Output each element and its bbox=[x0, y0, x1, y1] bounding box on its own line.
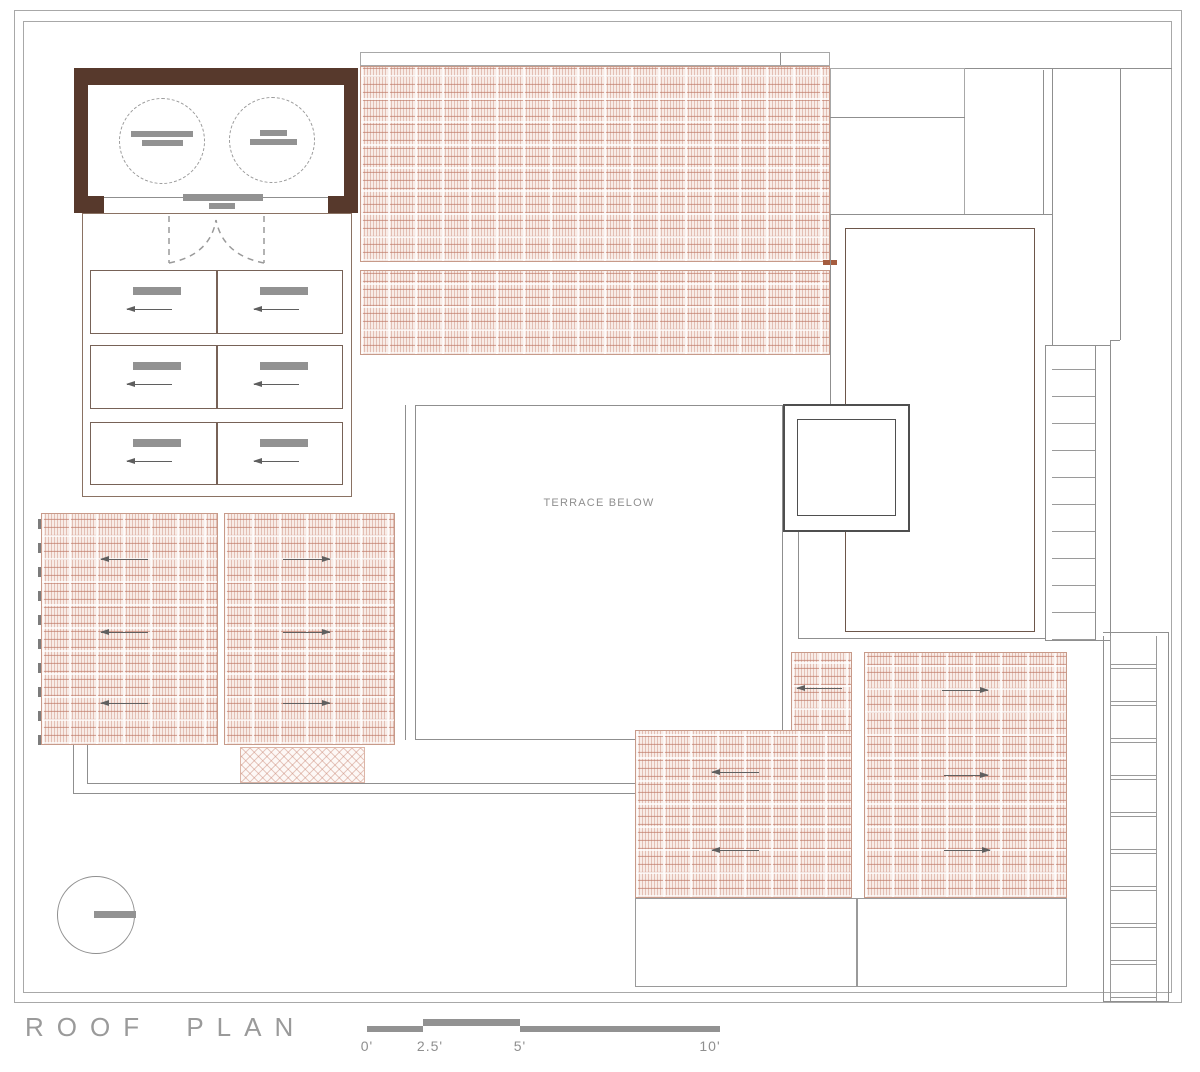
slope-arrow-left bbox=[101, 703, 148, 704]
panel-vent-bar bbox=[260, 287, 308, 295]
panel-vent-bar bbox=[260, 362, 308, 370]
wall-line-v bbox=[1043, 70, 1044, 215]
scale-bar-segment bbox=[423, 1019, 520, 1026]
slope-arrow-left bbox=[127, 384, 172, 385]
stair-lower-treads bbox=[1110, 636, 1157, 1002]
lower-roof-box-right bbox=[857, 898, 1067, 987]
panel-vent-bar bbox=[133, 287, 181, 295]
tile-roof-top-lower bbox=[360, 270, 830, 355]
slope-arrow-left bbox=[254, 309, 299, 310]
stair-rail-line bbox=[1095, 345, 1096, 640]
stair-rail-line bbox=[1168, 632, 1169, 1002]
slope-arrow-left bbox=[712, 772, 759, 773]
skylight-glass bbox=[797, 419, 896, 516]
page-title: ROOF PLAN bbox=[25, 1012, 306, 1043]
slope-arrow-right bbox=[942, 690, 988, 691]
slope-arrow-left bbox=[127, 309, 172, 310]
roof-panel bbox=[90, 422, 217, 485]
roof-panel bbox=[217, 270, 343, 334]
upper-right-roof-divider bbox=[830, 117, 965, 118]
upper-right-roof-outline bbox=[830, 68, 965, 215]
gravel-patch bbox=[240, 747, 365, 783]
stair-upper-treads bbox=[1052, 346, 1095, 640]
walkway-line-h bbox=[87, 783, 635, 784]
parapet-line-h bbox=[798, 638, 1045, 639]
terrace-label: TERRACE BELOW bbox=[425, 497, 773, 509]
stair-line-h bbox=[1103, 1001, 1168, 1002]
wall-line-h bbox=[830, 214, 1052, 215]
lower-roof-box-left bbox=[635, 898, 857, 987]
tile-roof-top-upper bbox=[360, 66, 830, 262]
roof-panel bbox=[217, 345, 343, 409]
stair-rail-line bbox=[1103, 636, 1104, 1002]
slope-arrow-right bbox=[944, 850, 990, 851]
walkway-line-h bbox=[73, 793, 635, 794]
slope-arrow-left bbox=[101, 559, 148, 560]
wall-line-v bbox=[1120, 68, 1121, 340]
slope-arrow-left bbox=[254, 461, 299, 462]
stair-line-h bbox=[1045, 345, 1110, 346]
parapet-line-v bbox=[830, 215, 831, 404]
tile-roof-left-a bbox=[41, 513, 218, 745]
slope-arrow-right bbox=[283, 559, 330, 560]
tile-roof-bottom-step bbox=[791, 652, 852, 734]
slope-arrow-left bbox=[127, 461, 172, 462]
roof-panel bbox=[90, 270, 217, 334]
stair-rail-line bbox=[1045, 345, 1046, 640]
scale-label-0: 0' bbox=[337, 1038, 397, 1054]
terrace-gutter-line bbox=[405, 405, 406, 740]
slope-arrow-right bbox=[944, 775, 988, 776]
scale-bar-segment bbox=[520, 1026, 720, 1032]
tile-roof-bottom-left bbox=[635, 730, 852, 898]
walkway-line-v bbox=[87, 745, 88, 783]
roof-panel bbox=[90, 345, 217, 409]
scale-label-10: 10' bbox=[680, 1038, 740, 1054]
eave-tick-marks bbox=[38, 513, 41, 745]
scale-bar-segment bbox=[367, 1026, 423, 1032]
roof-drain-bar bbox=[94, 911, 136, 918]
wall-line-v bbox=[1052, 68, 1053, 345]
walkway-line-v bbox=[73, 745, 74, 793]
slope-arrow-left bbox=[101, 632, 148, 633]
terrace-opening bbox=[415, 405, 783, 740]
panel-vent-bar bbox=[260, 439, 308, 447]
scale-label-5: 5' bbox=[490, 1038, 550, 1054]
roof-plan-drawing: TERRACE BELOW ROOF PLAN 0' 2.5' bbox=[0, 0, 1200, 1072]
slope-arrow-left bbox=[797, 688, 842, 689]
parapet-line-v bbox=[798, 532, 799, 638]
slope-arrow-left bbox=[712, 850, 759, 851]
slope-arrow-left bbox=[254, 384, 299, 385]
slope-arrow-right bbox=[283, 632, 330, 633]
tile-roof-left-b bbox=[224, 513, 395, 745]
panel-vent-bar bbox=[133, 362, 181, 370]
roof-panel bbox=[217, 422, 343, 485]
panel-vent-bar bbox=[133, 439, 181, 447]
stair-line-h bbox=[1045, 640, 1110, 641]
stair-line-h bbox=[1103, 632, 1168, 633]
slope-arrow-right bbox=[283, 703, 330, 704]
scale-label-2-5: 2.5' bbox=[400, 1038, 460, 1054]
wall-jog-line bbox=[1110, 340, 1120, 341]
